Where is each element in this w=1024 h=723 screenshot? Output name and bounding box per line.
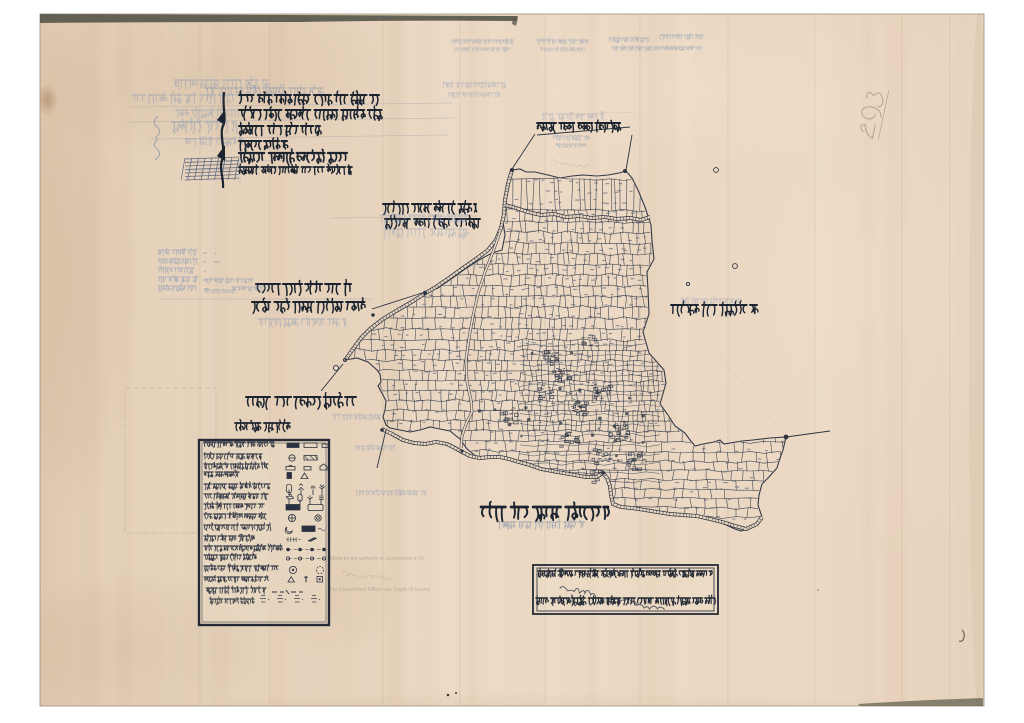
svg-text:For Government Officer use Sup: For Government Officer use Supdt. of Sur… bbox=[330, 587, 431, 593]
svg-text:Made by the authority of Gover: Made by the authority of Government in N… bbox=[330, 556, 427, 562]
